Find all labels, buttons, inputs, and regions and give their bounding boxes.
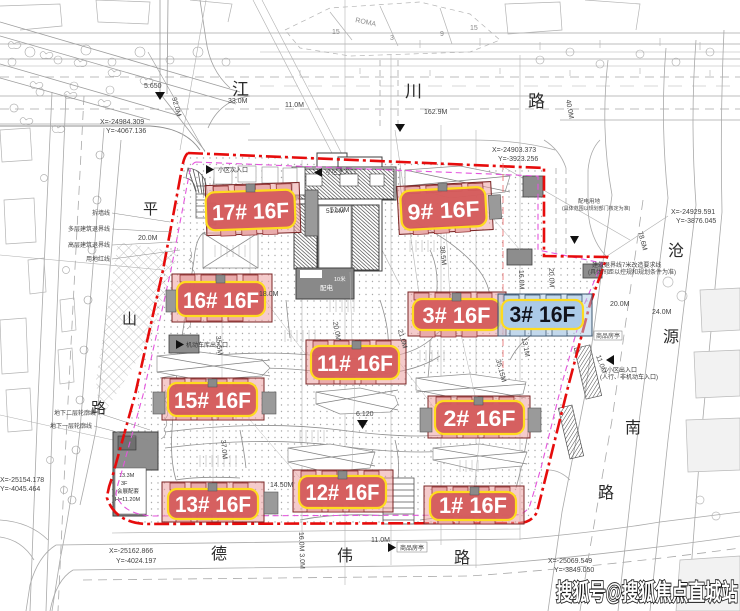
svg-text:地下一层轮廓线: 地下一层轮廓线 (50, 422, 92, 430)
svg-text:X=-24929.591: X=-24929.591 (671, 209, 715, 216)
svg-text:15: 15 (470, 25, 478, 32)
svg-text:X=-25162.866: X=-25162.866 (109, 548, 153, 555)
svg-text:3F: 3F (121, 481, 128, 487)
svg-text:3: 3 (390, 35, 394, 42)
svg-text:南: 南 (625, 419, 641, 437)
svg-text:12# 16F: 12# 16F (306, 480, 380, 505)
svg-text:Y=-4024.197: Y=-4024.197 (116, 558, 156, 565)
svg-text:拆墙线: 拆墙线 (92, 209, 110, 217)
svg-text:高层建筑退界线: 高层建筑退界线 (68, 241, 110, 249)
svg-text:24.0M: 24.0M (652, 309, 672, 316)
svg-text:13# 16F: 13# 16F (175, 492, 251, 517)
svg-text:小区主入口: 小区主入口 (326, 168, 356, 176)
svg-text:配电用地: 配电用地 (578, 197, 601, 205)
svg-text:11.0M: 11.0M (285, 102, 304, 109)
svg-text:2# 16F: 2# 16F (444, 406, 516, 431)
svg-text:Y=-4067.136: Y=-4067.136 (106, 128, 146, 135)
svg-text:3# 16F: 3# 16F (510, 302, 576, 327)
svg-text:51.0M: 51.0M (330, 207, 350, 214)
svg-text:商品房亭: 商品房亭 (596, 332, 620, 340)
svg-text:14.50M: 14.50M (270, 482, 294, 489)
svg-text:小区次入口: 小区次入口 (218, 166, 248, 174)
svg-text:平: 平 (143, 201, 158, 218)
svg-text:X=-25069.549: X=-25069.549 (548, 558, 592, 565)
svg-text:路: 路 (598, 484, 614, 502)
svg-text:Y=-3923.256: Y=-3923.256 (498, 156, 538, 163)
svg-text:X=-24984.309: X=-24984.309 (100, 119, 144, 126)
svg-text:(具体间距以控规和规划条件为准): (具体间距以控规和规划条件为准) (588, 268, 676, 276)
svg-text:20.0M: 20.0M (610, 301, 630, 308)
svg-text:18.0M: 18.0M (259, 291, 279, 298)
svg-text:3# 16F: 3# 16F (423, 303, 491, 328)
svg-text:X=-24903.373: X=-24903.373 (492, 147, 536, 154)
svg-text:6.120: 6.120 (356, 411, 374, 418)
svg-text:16.0M: 16.0M (517, 270, 525, 290)
svg-text:20.0M: 20.0M (138, 235, 158, 242)
svg-text:9# 16F: 9# 16F (407, 196, 480, 225)
svg-text:16.0M 3.0M: 16.0M 3.0M (297, 532, 305, 569)
svg-text:33.0M: 33.0M (228, 98, 248, 105)
svg-text:用地红线: 用地红线 (86, 255, 110, 263)
svg-text:机动车库出入口: 机动车库出入口 (186, 341, 228, 349)
svg-text:Y=-3876.045: Y=-3876.045 (676, 218, 716, 225)
svg-text:伟: 伟 (337, 547, 353, 565)
svg-text:(具体范围以规划部门核定为准): (具体范围以规划部门核定为准) (562, 205, 631, 212)
svg-text:10米: 10米 (334, 275, 346, 283)
svg-text:建筑退界线7米改造要求线: 建筑退界线7米改造要求线 (592, 261, 661, 269)
svg-text:商品房亭: 商品房亭 (400, 544, 424, 552)
svg-text:地下二层轮廓线: 地下二层轮廓线 (54, 409, 96, 417)
svg-text:X=-25154.178: X=-25154.178 (0, 477, 44, 484)
svg-text:Y=-3849.050: Y=-3849.050 (554, 567, 594, 574)
svg-text:(人行、非机动车入口): (人行、非机动车入口) (600, 373, 658, 381)
svg-text:15: 15 (332, 29, 340, 36)
svg-text:配电: 配电 (320, 283, 334, 292)
svg-text:会展配套: 会展配套 (117, 487, 140, 495)
svg-text:路: 路 (528, 92, 545, 111)
svg-text:11.0M: 11.0M (371, 537, 390, 544)
svg-text:16# 16F: 16# 16F (183, 288, 259, 313)
svg-text:路: 路 (454, 549, 470, 567)
svg-text:川: 川 (405, 82, 422, 101)
svg-text:山: 山 (122, 311, 137, 328)
svg-text:搜狐号@搜狐焦点直城站: 搜狐号@搜狐焦点直城站 (556, 579, 738, 605)
svg-text:17# 16F: 17# 16F (212, 198, 290, 226)
svg-text:15# 16F: 15# 16F (174, 388, 251, 413)
svg-text:9: 9 (440, 31, 444, 38)
svg-text:江: 江 (232, 80, 249, 99)
svg-text:5.650: 5.650 (144, 83, 162, 90)
svg-text:德: 德 (211, 545, 227, 563)
svg-text:多层建筑退界线: 多层建筑退界线 (68, 225, 110, 233)
svg-text:沧: 沧 (668, 242, 684, 260)
svg-text:1# 16F: 1# 16F (439, 493, 507, 518)
svg-text:(小区出入口: (小区出入口 (605, 366, 637, 374)
svg-text:162.9M: 162.9M (424, 109, 448, 116)
svg-text:20.0M: 20.0M (547, 268, 555, 288)
svg-text:源: 源 (663, 328, 679, 346)
svg-text:Y=-4045.464: Y=-4045.464 (0, 486, 40, 493)
svg-text:11# 16F: 11# 16F (317, 351, 393, 376)
